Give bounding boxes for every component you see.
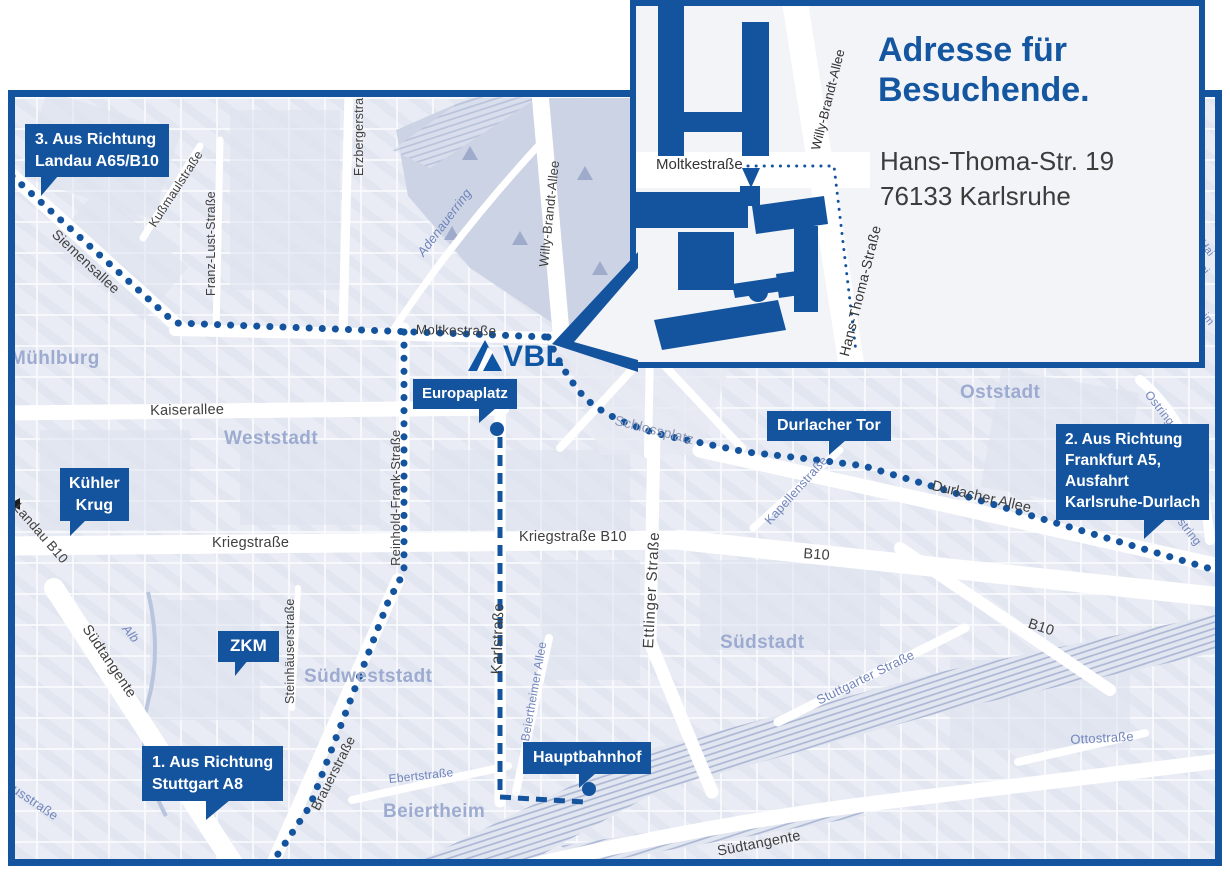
address-inset: Moltkestraße Willy-Brandt-Allee Hans-Tho… (630, 0, 1205, 368)
area-label-beiertheim: Beiertheim (383, 801, 485, 823)
badge-route-2-text: 2. Aus Richtung Frankfurt A5, Ausfahrt K… (1065, 430, 1200, 514)
street-label-erzbergerstrasse: Erzbergerstraße (352, 97, 366, 176)
street-label-kriegstrasse: Kriegstraße (212, 535, 289, 551)
street-label-reinhold-frank-strasse: Reinhold-Frank-Straße (388, 430, 403, 566)
area-label-suedstadt: Südstadt (720, 632, 804, 654)
badge-zkm: ZKM (218, 631, 279, 662)
badge-europaplatz: Europaplatz (413, 379, 517, 409)
street-label-steinhaeuserstrasse: Steinhäuserstraße (283, 598, 297, 704)
badge-pointer (829, 440, 846, 455)
badge-durlacher-tor-text: Durlacher Tor (777, 415, 881, 437)
badge-pointer (1144, 519, 1166, 539)
badge-durlacher-tor: Durlacher Tor (767, 411, 891, 441)
badge-hauptbahnhof-text: Hauptbahnhof (533, 747, 641, 769)
street-label-b10-west: B10 (803, 546, 830, 564)
badge-hauptbahnhof: Hauptbahnhof (523, 742, 651, 774)
badge-europaplatz-text: Europaplatz (422, 384, 508, 404)
area-label-oststadt: Oststadt (960, 382, 1040, 404)
area-label-weststadt: Weststadt (224, 428, 318, 450)
badge-pointer (70, 519, 87, 536)
badge-route-2-frankfurt: 2. Aus Richtung Frankfurt A5, Ausfahrt K… (1056, 424, 1209, 520)
area-label-suedweststadt: Südweststadt (304, 666, 432, 688)
badge-route-1-text: 1. Aus Richtung Stuttgart A8 (152, 752, 273, 795)
badge-pointer (41, 176, 58, 196)
badge-pointer (235, 659, 249, 676)
badge-pointer (206, 800, 230, 820)
inset-title: Adresse für Besuchende. (878, 30, 1090, 110)
street-label-karlstrasse: Karlstraße (488, 603, 507, 675)
badge-pointer (579, 773, 596, 788)
badge-kuehler-krug: Kühler Krug (60, 468, 129, 521)
badge-pointer (479, 408, 496, 423)
street-label-franz-lust-strasse: Franz-Lust-Straße (204, 191, 218, 296)
badge-kuehler-krug-text: Kühler Krug (69, 473, 120, 516)
area-label-muehlburg: Mühlburg (15, 348, 100, 370)
badge-route-1-stuttgart: 1. Aus Richtung Stuttgart A8 (142, 746, 283, 801)
badge-route-3-text: 3. Aus Richtung Landau A65/B10 (35, 129, 159, 172)
inset-street-label-moltkestrasse: Moltkestraße (656, 156, 743, 173)
europaplatz-stop-dot (490, 422, 504, 436)
street-label-moltkestrasse: Moltkestraße (416, 322, 497, 338)
street-label-kriegstrasse-b10: Kriegstraße B10 (519, 529, 627, 545)
street-label-kaiserallee: Kaiserallee (150, 402, 224, 419)
vbl-logo-triangle-icon (468, 340, 502, 371)
inset-address: Hans-Thoma-Str. 19 76133 Karlsruhe (880, 144, 1114, 214)
badge-zkm-text: ZKM (230, 635, 267, 658)
inset-pointer-tail (540, 240, 650, 380)
vbl-visitor-map-page: Siemensallee Kußmaulstraße Franz-Lust-St… (0, 0, 1230, 874)
badge-route-3-landau: 3. Aus Richtung Landau A65/B10 (25, 124, 169, 177)
